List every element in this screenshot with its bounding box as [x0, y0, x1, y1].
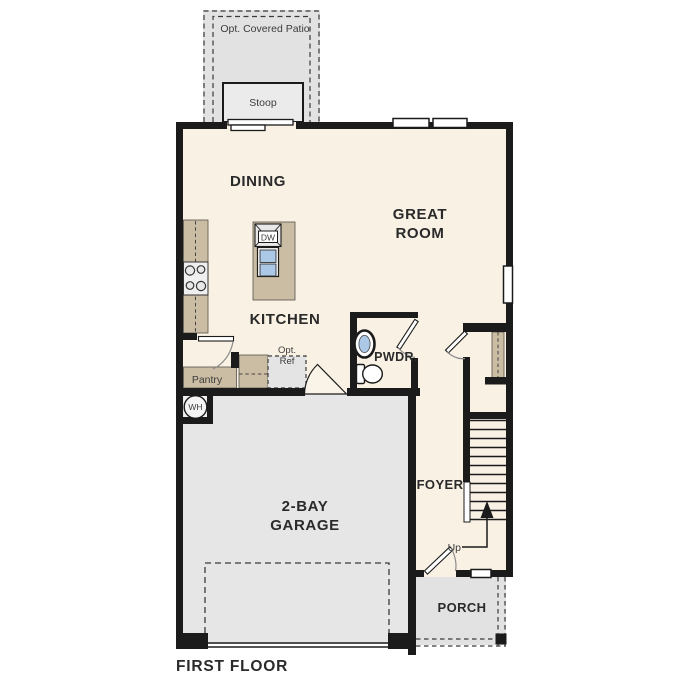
great-room-label-line1: GREAT	[393, 206, 447, 223]
stove-icon	[184, 262, 209, 295]
dishwasher-label: DW	[261, 233, 275, 243]
pantry-door	[199, 337, 234, 342]
porch-post	[496, 634, 507, 645]
pantry-label: Pantry	[192, 374, 223, 386]
plan-title: FIRST FLOOR	[176, 658, 288, 675]
porch-window	[471, 570, 491, 578]
patio-label: Opt. Covered Patio	[220, 23, 309, 35]
bottom-counter	[239, 355, 268, 388]
garage-label-line1: 2-BAY	[282, 498, 329, 515]
dining-label: DINING	[230, 173, 286, 190]
floor-plan-diagram: DW WH Opt. Covered Patio Stoop DINING GR…	[0, 0, 687, 687]
great-room-label-line2: ROOM	[395, 225, 444, 242]
stoop-label: Stoop	[249, 97, 277, 109]
garage-label-line2: GARAGE	[270, 517, 339, 534]
great-room-window-2	[433, 119, 467, 128]
foyer-label: FOYER	[417, 477, 464, 492]
kitchen-label: KITCHEN	[250, 311, 321, 328]
garage-door-opening	[208, 643, 388, 647]
powder-room-label: PWDR.	[374, 350, 418, 364]
water-heater-icon: WH	[184, 396, 207, 419]
opt-ref-label-line2: Ref	[280, 356, 295, 367]
floorplan-page: DW WH Opt. Covered Patio Stoop DINING GR…	[0, 0, 687, 687]
dishwasher-icon: DW	[255, 224, 281, 247]
opt-ref-label-line1: Opt.	[278, 345, 296, 356]
stairs-up-label: Up	[448, 542, 462, 554]
great-room-window-1	[393, 119, 429, 128]
toilet-icon	[357, 365, 383, 384]
right-wall-window	[504, 266, 513, 303]
porch-label: PORCH	[438, 600, 487, 615]
water-heater-label: WH	[188, 402, 202, 412]
kitchen-sink-icon	[258, 248, 279, 277]
powder-sink-icon	[355, 331, 375, 358]
